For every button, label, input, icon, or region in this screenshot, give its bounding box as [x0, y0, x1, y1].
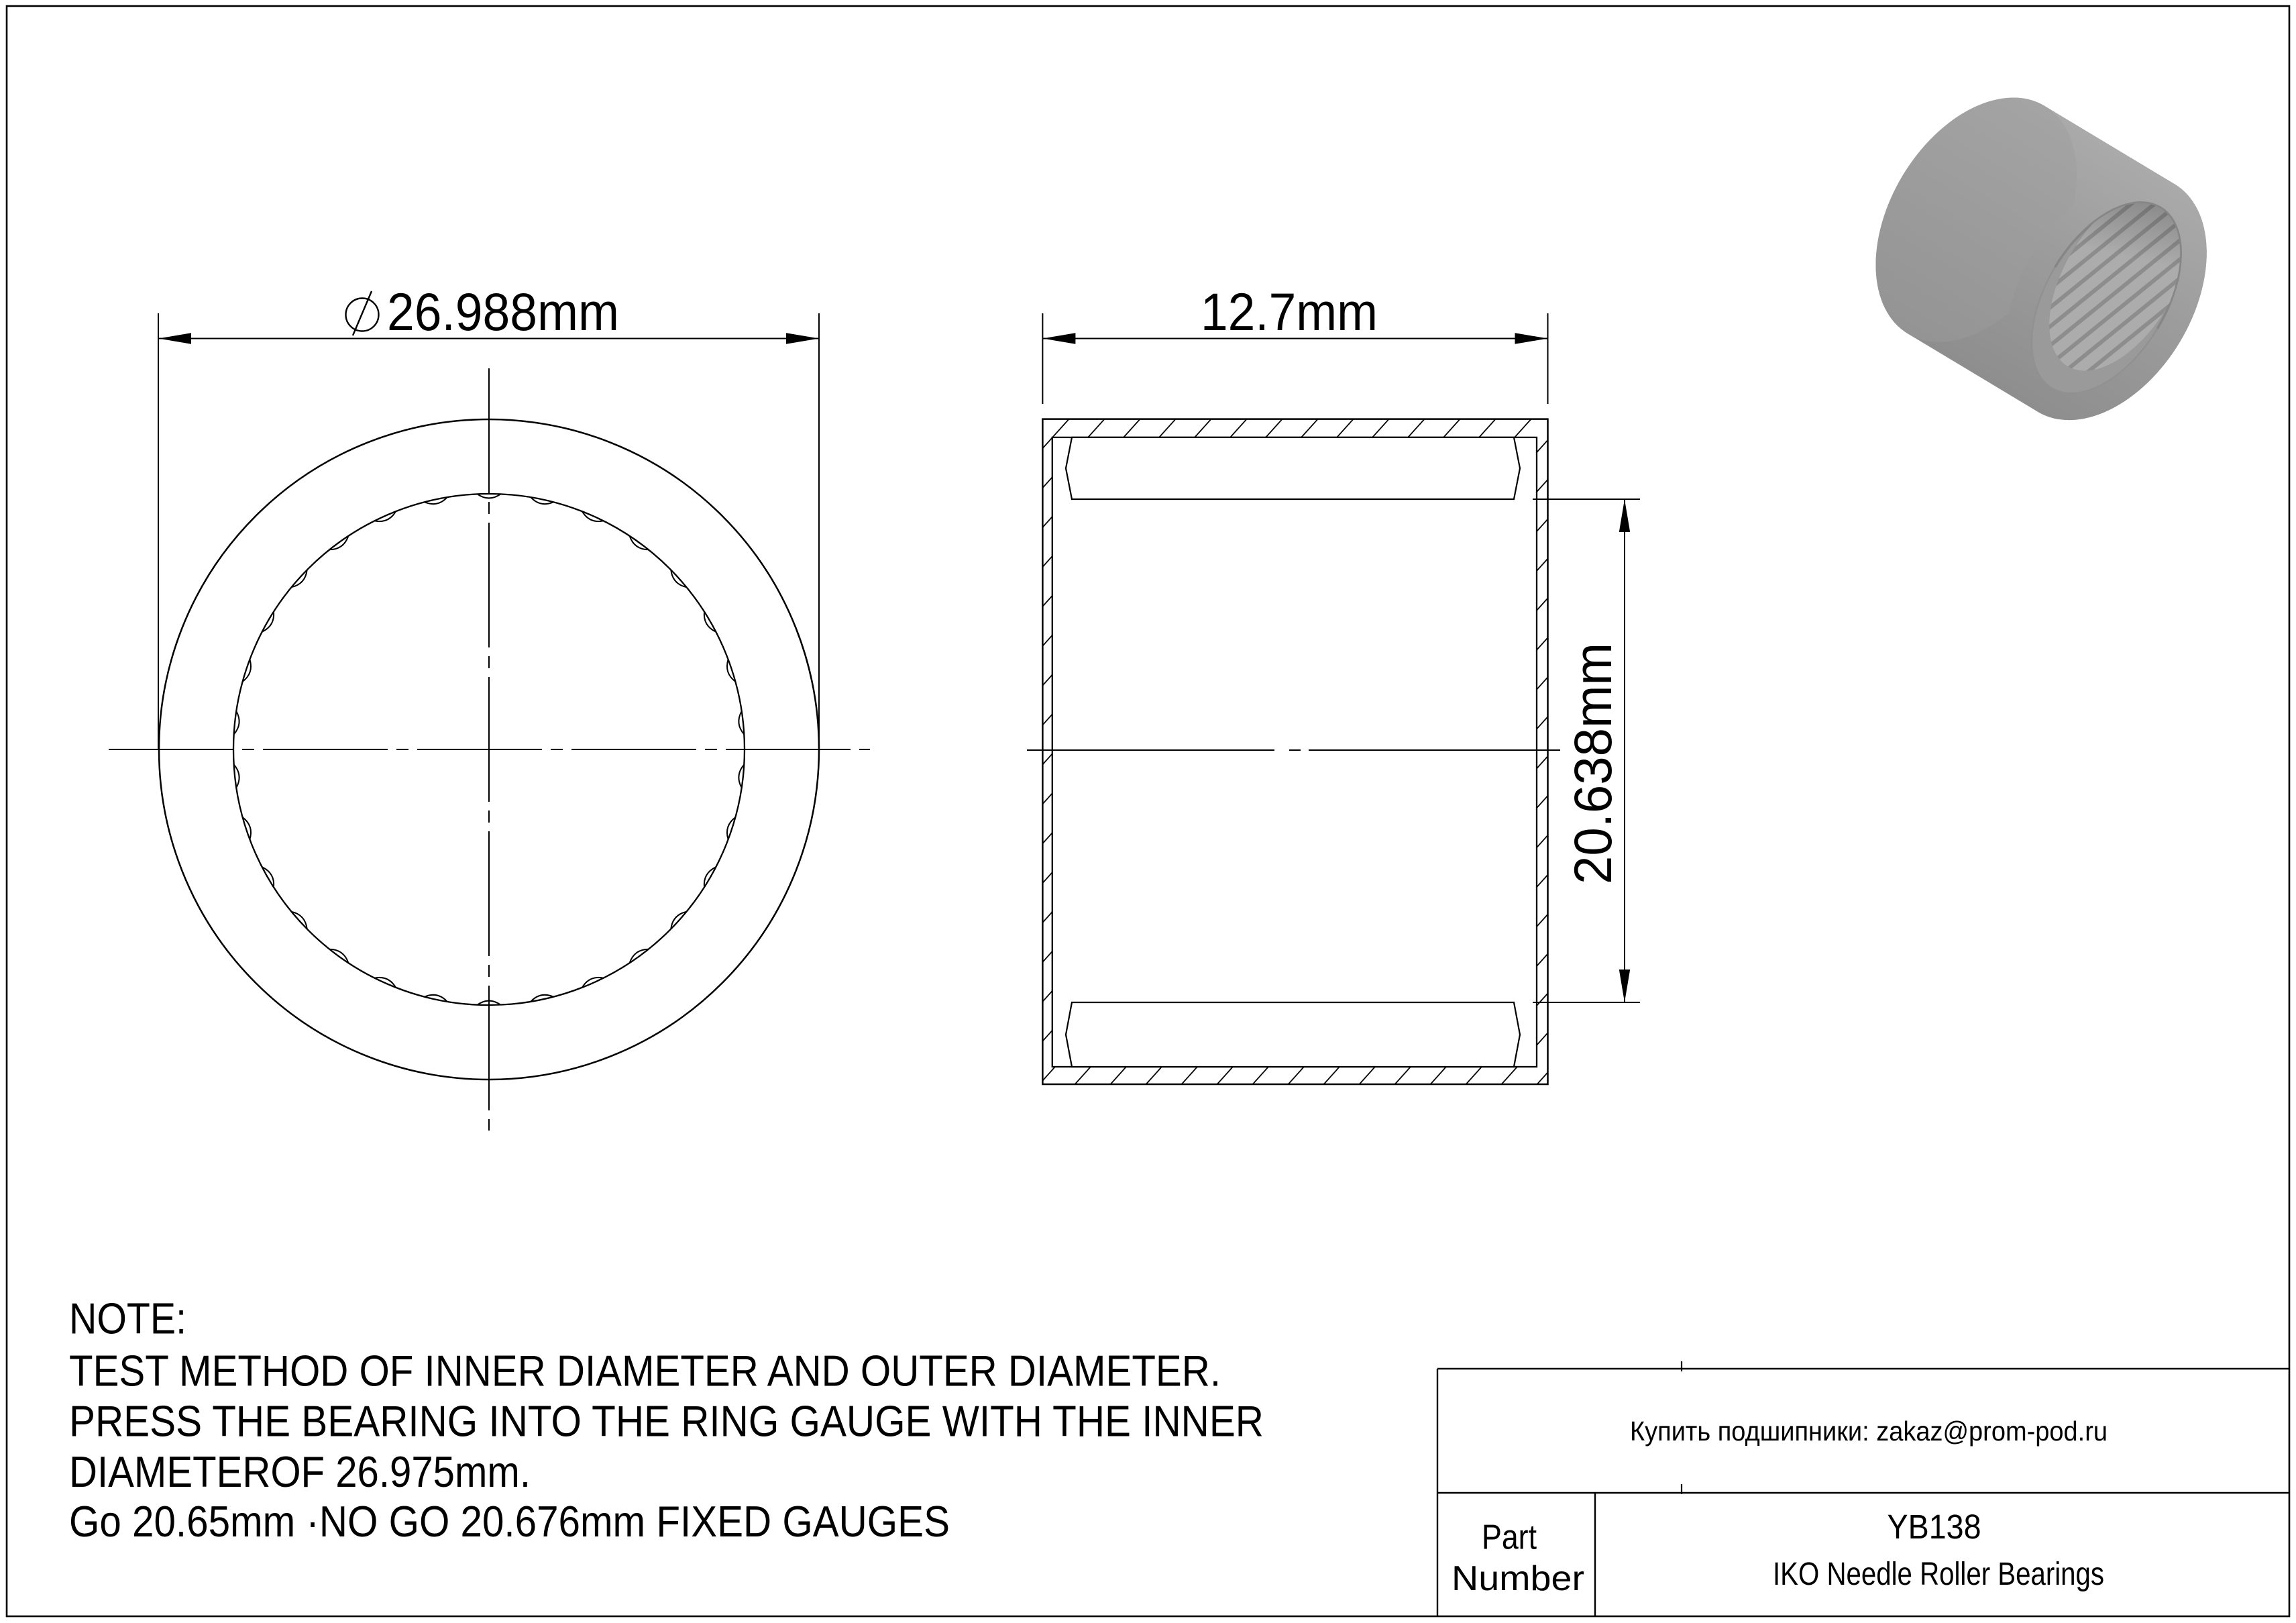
svg-text:Part: Part: [1482, 1518, 1537, 1557]
svg-text:TEST METHOD OF INNER DIAMETER: TEST METHOD OF INNER DIAMETER AND OUTER …: [69, 1347, 1221, 1396]
svg-text:YB138: YB138: [1888, 1508, 1981, 1546]
svg-text:NOTE:: NOTE:: [69, 1294, 186, 1343]
svg-text:Number: Number: [1452, 1559, 1584, 1598]
svg-text:Купить подшипники: zakaz@prom-: Купить подшипники: zakaz@prom-pod.ru: [1630, 1416, 2108, 1447]
svg-text:IKO Needle Roller Bearings: IKO Needle Roller Bearings: [1773, 1557, 2104, 1592]
svg-text:20.638mm: 20.638mm: [1563, 643, 1623, 884]
svg-text:12.7mm: 12.7mm: [1201, 282, 1378, 342]
svg-text:26.988mm: 26.988mm: [387, 282, 619, 342]
svg-text:Go 20.65mm ·NO GO 20.676mm FIX: Go 20.65mm ·NO GO 20.676mm FIXED GAUGES: [69, 1497, 950, 1546]
svg-text:DIAMETEROF 26.975mm.: DIAMETEROF 26.975mm.: [69, 1447, 531, 1496]
svg-text:PRESS THE BEARING INTO THE RIN: PRESS THE BEARING INTO THE RING GAUGE WI…: [69, 1397, 1264, 1446]
